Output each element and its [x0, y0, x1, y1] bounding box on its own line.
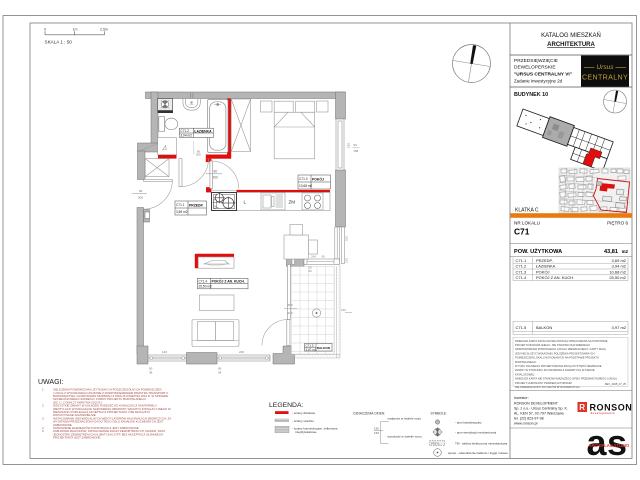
- svg-text:tel. (22) 823-97-98: tel. (22) 823-97-98: [514, 417, 544, 421]
- svg-text:C71.4: C71.4: [199, 279, 208, 283]
- svg-text:C71.2: C71.2: [180, 129, 189, 133]
- svg-text:200: 200: [213, 176, 219, 180]
- svg-text:KATALOG MIESZKAŃ: KATALOG MIESZKAŃ: [541, 32, 601, 39]
- svg-text:wpust - odwodnienie balkonu /: wpust - odwodnienie balkonu / loggii / t…: [448, 451, 508, 455]
- svg-text:AL. KEN 57, 02-797 Warszawa: AL. KEN 57, 02-797 Warszawa: [514, 412, 564, 416]
- svg-text:10,68 m2: 10,68 m2: [609, 269, 626, 274]
- svg-text:NR LOKALU: NR LOKALU: [514, 221, 540, 226]
- svg-text:230: 230: [239, 350, 244, 354]
- svg-text:1.: 1.: [42, 388, 45, 392]
- svg-text:38: 38: [218, 371, 222, 375]
- svg-text:DEWELOPERSKIE: DEWELOPERSKIE: [514, 65, 556, 71]
- svg-text:"URSUS CENTRALNY VI": "URSUS CENTRALNY VI": [514, 72, 572, 78]
- svg-text:www.ronson.pl: www.ronson.pl: [514, 422, 538, 426]
- svg-text:BUDOWLANEGO.: BUDOWLANEGO.: [515, 360, 537, 364]
- svg-text:25,50 m2: 25,50 m2: [199, 285, 213, 289]
- svg-text:3.: 3.: [42, 416, 45, 420]
- svg-text:3,94 m2: 3,94 m2: [180, 134, 192, 138]
- svg-text:43,81: 43,81: [604, 249, 618, 255]
- svg-text:PRZEDSIĘWZIĘCIE: PRZEDSIĘWZIĘCIE: [514, 58, 558, 64]
- svg-text:90: 90: [139, 189, 143, 193]
- svg-text:3,97 m2: 3,97 m2: [306, 348, 317, 352]
- svg-text:150: 150: [341, 308, 346, 312]
- svg-text:140: 140: [162, 350, 167, 354]
- svg-text:m2: m2: [622, 249, 629, 254]
- svg-text:2,5m: 2,5m: [100, 27, 108, 31]
- svg-text:POKÓJ Z AN. KUCH.: POKÓJ Z AN. KUCH.: [212, 279, 245, 284]
- svg-text:NINIEJSZA KARTA KATALOGOWA ZOS: NINIEJSZA KARTA KATALOGOWA ZOSTAŁA OPRAC…: [515, 339, 608, 343]
- svg-text:POW. UŻYTKOWA: POW. UŻYTKOWA: [514, 248, 562, 255]
- svg-text:158: 158: [353, 149, 358, 153]
- svg-text:90: 90: [309, 269, 313, 273]
- svg-text:BALKON: BALKON: [317, 346, 331, 350]
- svg-text:90: 90: [354, 143, 358, 147]
- svg-text:150: 150: [347, 143, 351, 148]
- svg-text:PRZYŁ.: PRZYŁ.: [431, 441, 441, 445]
- svg-text:ODWZOROWANIA POWSTAŁEGO LOKALU: ODWZOROWANIA POWSTAŁEGO LOKALU MIESZKALN…: [515, 347, 606, 351]
- svg-text:ŁAZIENKA: ŁAZIENKA: [194, 129, 212, 133]
- svg-text:RONSON: RONSON: [590, 403, 633, 413]
- svg-text:POMIESZCZEŃ LOKALU WYKONANYCH: POMIESZCZEŃ LOKALU WYKONANYCH NA PODSTAW…: [515, 356, 599, 360]
- svg-text:POKÓJ: POKÓJ: [536, 269, 550, 274]
- svg-text:90: 90: [214, 170, 218, 174]
- svg-text:PRZEDP.: PRZEDP.: [189, 204, 203, 208]
- svg-text:150: 150: [374, 426, 379, 430]
- svg-text:- ściany działowe: - ściany działowe: [292, 411, 316, 415]
- svg-text:200: 200: [196, 153, 201, 157]
- svg-text:25,50 m2: 25,50 m2: [609, 275, 626, 280]
- svg-text:UWAGI:: UWAGI:: [38, 379, 63, 386]
- svg-text:C71.3: C71.3: [299, 177, 308, 181]
- svg-text:3,69 m2: 3,69 m2: [612, 258, 627, 263]
- svg-text:PROJEKT CHRONIONY PRAWEM AUTOR: PROJEKT CHRONIONY PRAWEM AUTORSKIM: [515, 381, 572, 385]
- svg-text:RONSON DEVELOPMENT: RONSON DEVELOPMENT: [514, 402, 559, 406]
- svg-text:SKALA 1 : 50: SKALA 1 : 50: [45, 40, 73, 45]
- svg-text:OZNACZENIA OKIEN:: OZNACZENIA OKIEN:: [353, 412, 385, 416]
- svg-text:ŁAZIENKA: ŁAZIENKA: [536, 264, 556, 269]
- svg-text:BUDYNEK 10: BUDYNEK 10: [514, 92, 548, 98]
- svg-text:38: 38: [149, 371, 153, 375]
- svg-text:Sp. z o.o.- Ursus Centralny Sp: Sp. z o.o.- Ursus Centralny Sp. K.: [514, 407, 568, 411]
- svg-text:250: 250: [288, 303, 293, 307]
- svg-text:PRZEDP.: PRZEDP.: [536, 258, 553, 263]
- svg-text:TM - tablica elektryczna miesz: TM - tablica elektryczna mieszkaniowa: [455, 441, 507, 445]
- svg-text:2.: 2.: [42, 404, 45, 408]
- svg-text:CENTRALNY: CENTRALNY: [582, 74, 628, 82]
- svg-text:160: 160: [345, 258, 349, 263]
- svg-text:POKÓJ Z AN. KUCH.: POKÓJ Z AN. KUCH.: [536, 275, 574, 280]
- svg-text:C71: C71: [514, 227, 530, 237]
- svg-text:3,97 m2: 3,97 m2: [612, 325, 627, 330]
- svg-text:ZMIANY W STOSUNKU DO INFORMACJ: ZMIANY W STOSUNKU DO INFORMACJI ZAWARTYC…: [515, 368, 595, 372]
- svg-text:C71.4: C71.4: [516, 275, 527, 280]
- svg-text:Inwestor:: Inwestor:: [514, 396, 529, 400]
- svg-text:- pion kanalizacyjny: - pion kanalizacyjny: [455, 420, 482, 424]
- svg-text:L: L: [244, 200, 247, 205]
- svg-text:wysokość w świetle muru: wysokość w świetle muru: [388, 435, 423, 439]
- svg-text:KLATKA C: KLATKA C: [515, 208, 539, 214]
- svg-text:KATALOGOWEJ.: KATALOGOWEJ.: [515, 372, 535, 376]
- svg-text:5.: 5.: [42, 429, 45, 433]
- svg-text:nadproże w świetle muru: nadproże w świetle muru: [388, 417, 422, 421]
- svg-text:C71.3: C71.3: [516, 269, 527, 274]
- svg-text:SYMBOLE:: SYMBOLE:: [431, 412, 447, 416]
- svg-text:PROJEKTU BUDOWLANEGO. NIE STAN: PROJEKTU BUDOWLANEGO. NIE STANOWI ONA WI…: [515, 343, 590, 347]
- svg-text:10,68 m2: 10,68 m2: [299, 184, 313, 188]
- svg-text:0: 0: [44, 27, 46, 31]
- svg-text:ARCHIPLAN STUDIO: ARCHIPLAN STUDIO: [589, 443, 631, 448]
- svg-text:C71.1: C71.1: [176, 203, 185, 207]
- svg-text:3,94 m2: 3,94 m2: [612, 264, 627, 269]
- svg-text:PIĘTRO 6: PIĘTRO 6: [607, 221, 628, 226]
- svg-text:3,69 m2: 3,69 m2: [176, 210, 188, 214]
- svg-text:Zadanie inwestycyjne 2d: Zadanie inwestycyjne 2d: [514, 79, 563, 84]
- svg-text:520: 520: [345, 236, 349, 241]
- svg-text:REV_2025_07_25: REV_2025_07_25: [605, 382, 627, 386]
- svg-text:200: 200: [138, 196, 143, 200]
- svg-text:C71.5: C71.5: [516, 325, 527, 330]
- svg-text:Ursus: Ursus: [596, 64, 614, 71]
- svg-text:240: 240: [311, 255, 316, 259]
- svg-text:90: 90: [322, 255, 326, 259]
- svg-text:- ściany szachtu: - ściany szachtu: [292, 419, 314, 423]
- svg-text:BALKON: BALKON: [536, 325, 552, 330]
- svg-text:210: 210: [288, 311, 293, 315]
- svg-text:ZM: ZM: [289, 200, 296, 205]
- svg-text:developments: developments: [591, 411, 616, 415]
- svg-text:- pion wentylacji mechanicznej: - pion wentylacji mechanicznej: [455, 430, 496, 434]
- svg-text:R: R: [579, 403, 585, 412]
- svg-text:międzylokalowe: międzylokalowe: [295, 430, 317, 434]
- svg-text:1m: 1m: [73, 27, 78, 31]
- svg-text:LEGENDA:: LEGENDA:: [269, 402, 303, 409]
- svg-text:153: 153: [374, 431, 379, 435]
- svg-text:C71.1: C71.1: [516, 258, 527, 263]
- svg-text:C71.2: C71.2: [516, 264, 527, 269]
- svg-text:ARCHITEKTURA: ARCHITEKTURA: [547, 42, 595, 48]
- svg-text:PROJEKTANTA JEST ZABRONIONE: PROJEKTANTA JEST ZABRONIONE: [53, 436, 101, 440]
- svg-text:POKÓJ: POKÓJ: [312, 177, 324, 182]
